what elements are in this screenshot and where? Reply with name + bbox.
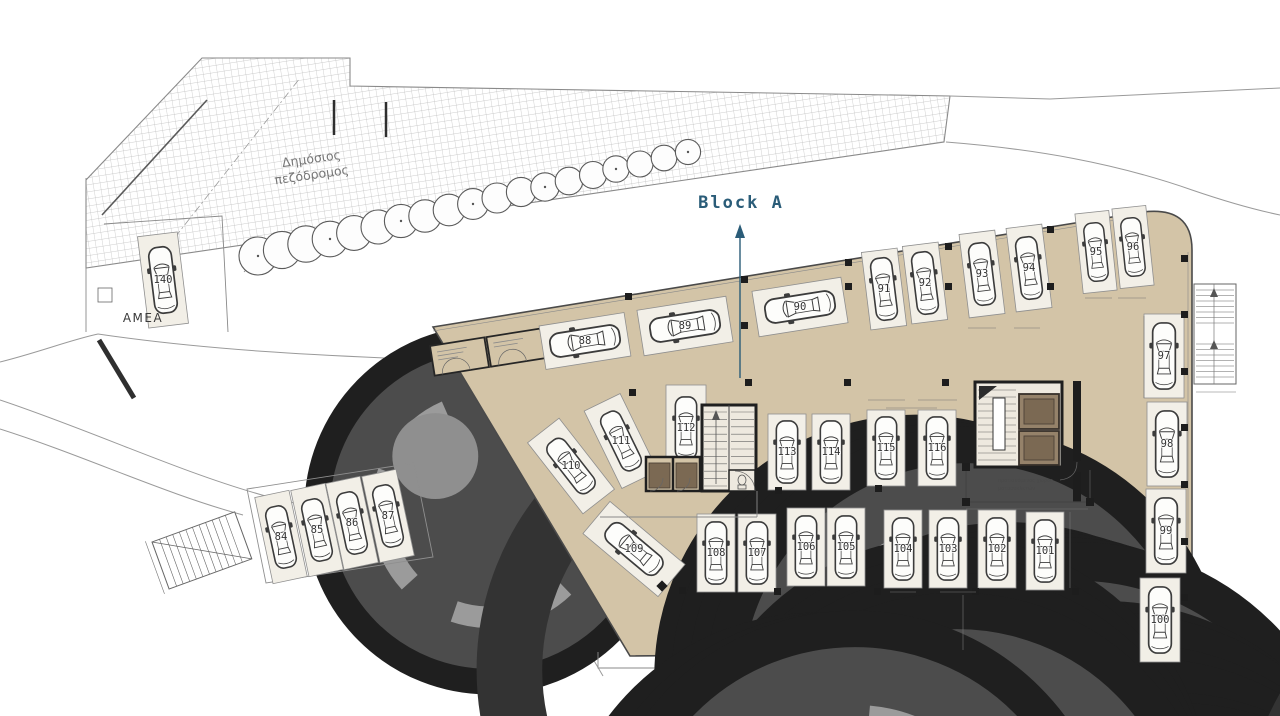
svg-text:106: 106 bbox=[797, 541, 816, 553]
floor-plan-page: Δημόσιος πεζόδρομος bbox=[0, 0, 1280, 716]
svg-text:93: 93 bbox=[976, 268, 989, 280]
pedestrian-walkway bbox=[86, 58, 950, 268]
parking-space-114: 114 bbox=[812, 414, 850, 490]
svg-text:110: 110 bbox=[562, 460, 581, 472]
svg-text:108: 108 bbox=[707, 547, 726, 559]
parking-space-107: 107 bbox=[738, 514, 776, 592]
svg-text:107: 107 bbox=[748, 547, 767, 559]
svg-text:90: 90 bbox=[794, 301, 807, 313]
svg-text:100: 100 bbox=[1151, 614, 1170, 626]
svg-text:104: 104 bbox=[894, 543, 913, 555]
parking-space-108: 108 bbox=[697, 514, 735, 592]
parking-space-101: 101 bbox=[1026, 512, 1064, 590]
svg-text:111: 111 bbox=[612, 435, 631, 447]
svg-text:96: 96 bbox=[1127, 241, 1140, 253]
block-a-label: Block A bbox=[698, 193, 784, 213]
stair-core bbox=[702, 405, 756, 491]
parking-space-100: 100 bbox=[1140, 578, 1180, 662]
svg-text:προτεινόμενος χώρος: προτεινόμενος χώρος bbox=[998, 477, 1053, 484]
svg-text:112: 112 bbox=[677, 422, 696, 434]
svg-text:91: 91 bbox=[878, 283, 891, 295]
svg-text:98: 98 bbox=[1161, 438, 1174, 450]
svg-text:140: 140 bbox=[154, 274, 173, 286]
svg-text:114: 114 bbox=[822, 446, 841, 458]
svg-text:94: 94 bbox=[1023, 262, 1036, 274]
svg-text:95: 95 bbox=[1090, 246, 1103, 258]
svg-text:97: 97 bbox=[1158, 350, 1171, 362]
svg-text:113: 113 bbox=[778, 446, 797, 458]
svg-text:87: 87 bbox=[382, 510, 395, 522]
svg-text:102: 102 bbox=[988, 543, 1007, 555]
svg-text:85: 85 bbox=[311, 524, 324, 536]
svg-text:115: 115 bbox=[877, 442, 896, 454]
svg-text:109: 109 bbox=[625, 543, 644, 555]
parking-space-99: 99 bbox=[1146, 489, 1186, 573]
svg-text:105: 105 bbox=[837, 541, 856, 553]
svg-text:84: 84 bbox=[275, 531, 288, 543]
svg-text:101: 101 bbox=[1036, 545, 1055, 557]
parking-space-97: 97 bbox=[1144, 314, 1184, 398]
amea-label: ΑΜΕΑ bbox=[123, 311, 163, 325]
svg-text:89: 89 bbox=[679, 320, 692, 332]
svg-text:86: 86 bbox=[346, 517, 359, 529]
svg-text:116: 116 bbox=[928, 442, 947, 454]
parking-space-98: 98 bbox=[1147, 402, 1187, 486]
floor-plan-canvas: Δημόσιος πεζόδρομος bbox=[0, 0, 1280, 716]
svg-text:92: 92 bbox=[919, 277, 932, 289]
svg-text:μοτοσυκλετών: μοτοσυκλετών bbox=[998, 485, 1035, 492]
parking-space-102: 102 bbox=[978, 510, 1016, 588]
svg-text:103: 103 bbox=[939, 543, 958, 555]
arrow-up-icon bbox=[735, 224, 745, 238]
parking-space-113: 113 bbox=[768, 414, 806, 490]
svg-text:88: 88 bbox=[579, 335, 592, 347]
external-stairs-left bbox=[145, 509, 252, 594]
parking-space-105: 105 bbox=[827, 508, 865, 586]
parking-space-106: 106 bbox=[787, 508, 825, 586]
svg-text:99: 99 bbox=[1160, 525, 1173, 537]
